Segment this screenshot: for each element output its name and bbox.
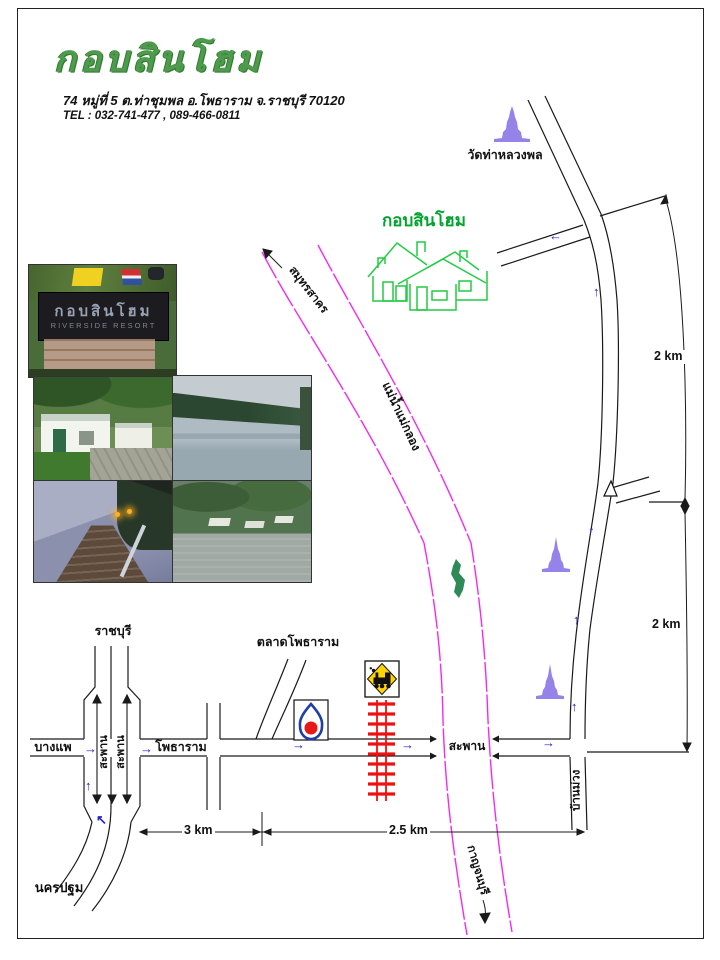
photo-riverbank-pavilions [172,480,312,583]
tree-texture [173,481,311,534]
map-direction-sheet: กอบสินโฮม RIVERSIDE RESORT ก [0,0,720,960]
direction-arrow-right-5: → [542,736,555,749]
temple-icon-mid [542,537,570,572]
photo-river-morning [172,375,312,482]
sign-board-thai-text: กอบสินโฮม [39,299,168,323]
direction-arrow-right-1: → [84,742,97,755]
water-streaks [173,537,311,582]
direction-arrow-up-3: ↑ [573,613,580,626]
photo-pier-dusk [33,480,174,583]
sign-board-english-text: RIVERSIDE RESORT [39,321,168,330]
nakhon-pathom-label: นครปฐม [29,881,89,895]
direction-arrow-up-5: ↑ [85,779,92,792]
ratchaburi-label: ราชบุรี [85,625,141,639]
downstream-arrow [263,249,282,268]
distance-2-5km: 2.5 km [387,824,430,838]
direction-arrow-right-3: → [292,738,305,751]
resort-label: กอบสินโฮม [382,212,466,231]
market-label: ตลาดโพธาราม [256,636,340,650]
photharam-label: โพธาราม [153,741,209,755]
thai-flag [121,269,142,285]
cottage-window [79,431,94,444]
brick-driveway [90,448,173,481]
address-line: 74 หมู่ที่ 5 ต.ท่าชุมพล อ.โพธาราม จ.ราชบ… [63,90,345,111]
yellow-flag [72,268,104,286]
telephone-line: TEL : 032-741-477 , 089-466-0811 [63,110,240,122]
railroad-crossing-sign-icon [365,661,399,697]
pavilion-roof-1 [208,518,230,526]
bridge-label: สะพาน [444,740,490,753]
fork-marker [604,481,617,496]
cottage-door [53,429,66,452]
cottage-far [115,423,153,449]
distance-2km-lower: 2 km [650,618,683,632]
page-title: กอบสินโฮม [54,30,264,87]
direction-arrow-up-1: ↑ [593,285,600,298]
temple-icon-wat-tha-luang-phon [494,106,530,142]
direction-arrow-left-resort: ← [549,229,562,242]
direction-arrow-merge: ↖ [96,813,107,826]
pavilion-roof-3 [274,516,293,523]
ban-muang-label: บ้านม่วง [571,762,584,818]
distance-3km: 3 km [182,824,215,838]
stone-base [44,339,156,369]
water-reflection [173,439,311,450]
distance-2km-upper: 2 km [652,350,685,364]
sign-board: กอบสินโฮม RIVERSIDE RESORT [38,292,169,341]
overpass-label-2: สะพาน [115,732,127,772]
resort-houses-drawing [368,242,487,310]
right-bank [300,387,311,450]
direction-arrow-right-2: → [140,742,153,755]
wat-tha-luang-phon-label: วัดท่าหลวงพล [460,149,550,163]
direction-arrow-up-4: ↑ [571,700,578,713]
railway-track [368,700,395,801]
photo-bungalow [33,376,174,482]
overpass-label-1: สะพาน [98,732,110,772]
pavilion-roof-2 [244,521,265,528]
lawn [34,452,92,481]
ptt-gas-station-icon [294,700,328,740]
river-island [451,559,465,598]
lamp [148,267,164,279]
temple-icon-south [536,664,564,699]
bangphae-label: บางแพ [28,741,78,755]
lamp-glow-1 [115,512,120,517]
treeline [173,393,311,427]
photo-resort-sign: กอบสินโฮม RIVERSIDE RESORT [28,264,177,378]
direction-arrow-right-4: → [401,738,414,751]
